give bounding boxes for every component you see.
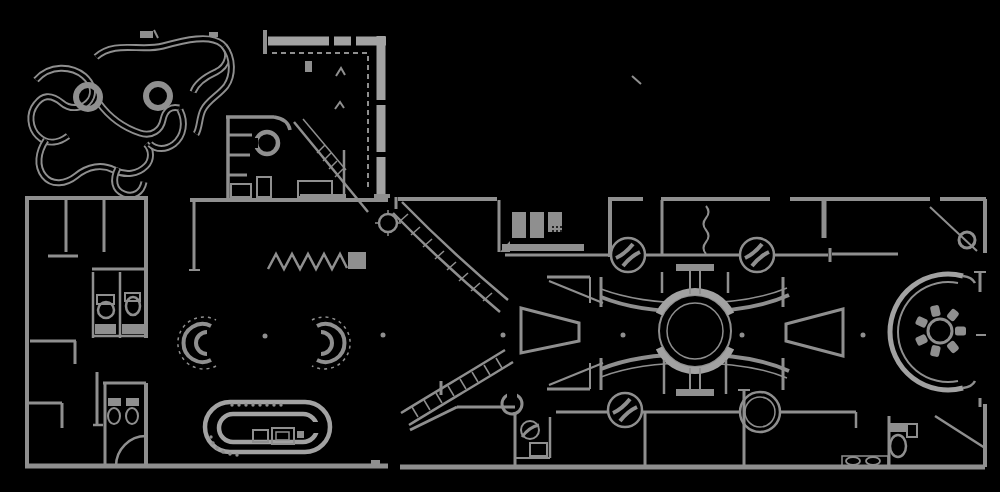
locker-2 — [530, 212, 544, 238]
revolving-door-2 — [740, 238, 774, 272]
floor-plan-page — [0, 0, 1000, 492]
locker-dot-3 — [560, 226, 562, 228]
colonnade-dot-3 — [740, 333, 745, 338]
furniture — [231, 184, 251, 197]
desk-dot-12 — [221, 450, 224, 453]
desk-gap — [311, 422, 322, 433]
rotunda-hall — [501, 264, 866, 396]
court-arc-hook-2 — [963, 381, 975, 388]
desk-dot-4 — [251, 403, 254, 406]
chair-5 — [915, 316, 929, 329]
south-rooms — [457, 390, 985, 466]
fixture-box — [907, 424, 917, 437]
column-ring-3 — [959, 232, 975, 248]
toilet-bowl-2 — [108, 408, 120, 424]
desk-dot-7 — [272, 403, 275, 406]
east-court — [890, 199, 986, 407]
ramp-tread-9 — [412, 407, 418, 417]
revolving-door — [611, 238, 645, 272]
desk-dot-8 — [279, 403, 282, 406]
ramp-south-rail-2 — [409, 362, 513, 425]
desk-dot-5 — [258, 403, 261, 406]
cistern-4 — [126, 398, 139, 406]
chair-2 — [946, 340, 960, 354]
symbol-mark-2 — [335, 102, 344, 109]
ramp-north-rail — [402, 202, 508, 300]
chair-3 — [930, 345, 941, 358]
stair-kiosk — [226, 116, 368, 212]
ramp-tread-14 — [472, 372, 478, 382]
column-dot — [263, 334, 268, 339]
toilet-bowl — [126, 297, 140, 315]
wall-break-4 — [372, 152, 388, 157]
desk-dot-6 — [265, 403, 268, 406]
revolving-door-3 — [608, 393, 642, 427]
shower-arc — [116, 436, 146, 466]
desk-dot-10 — [211, 441, 214, 444]
vestibule-diagonal — [549, 281, 603, 303]
locker — [512, 212, 526, 238]
slide-tube-lower — [39, 140, 151, 183]
vestibule-diagonal-2 — [549, 363, 603, 385]
court-arc-hook — [963, 276, 975, 283]
ramp-tread-10 — [424, 400, 430, 410]
zigzag-feature-wall — [268, 254, 347, 269]
zigzag-end-block — [348, 252, 366, 269]
floor-plan-drawing — [0, 0, 1000, 492]
desk-equipment-3 — [276, 432, 289, 440]
splash-pool-east — [146, 84, 170, 108]
stage-trapezoid-west — [521, 308, 579, 353]
locker-dot-2 — [556, 226, 558, 228]
grid-marker-tick — [154, 30, 158, 38]
round-table-gap — [252, 138, 258, 148]
ramp-south-rail — [401, 350, 505, 413]
bench-arrow — [500, 241, 510, 252]
desk-dot-11 — [215, 446, 218, 449]
stair-tread — [317, 145, 325, 153]
west-wing — [25, 196, 148, 468]
curtain-wavy-line — [704, 206, 709, 254]
toilet-bowl-4 — [890, 435, 906, 457]
ramp-tread-15 — [484, 365, 490, 375]
ramp-tread-13 — [460, 379, 466, 389]
grid-marker — [140, 31, 153, 38]
desk-dot-14 — [235, 453, 238, 456]
colonnade-dot-2 — [621, 333, 626, 338]
ramp-tread-16 — [496, 358, 502, 368]
desk-dot-13 — [228, 452, 231, 455]
round-table — [256, 132, 278, 154]
ramp-tread-12 — [448, 386, 454, 396]
stair-landing — [530, 443, 547, 456]
round-table-2-center — [933, 324, 947, 338]
threshold-marker — [371, 460, 380, 466]
locker-3 — [548, 212, 562, 232]
gallery-hall-wall — [265, 30, 390, 198]
chair-4 — [915, 334, 929, 347]
locker-dot-4 — [552, 230, 554, 232]
lobby — [178, 200, 401, 457]
bench-counter — [502, 244, 584, 251]
chair — [955, 327, 966, 336]
colonnade-dot-4 — [861, 333, 866, 338]
colonnade-dot — [501, 333, 506, 338]
desk-dot-2 — [237, 403, 240, 406]
chair-7 — [946, 308, 960, 322]
survey-tick — [632, 76, 641, 84]
desk-equipment-4 — [297, 431, 304, 438]
sink-basin-2 — [866, 457, 880, 465]
bench — [95, 324, 116, 334]
rotunda-cap-south — [676, 389, 714, 396]
corner-diagonal-wall — [935, 416, 985, 448]
water-slide-garden — [31, 30, 312, 195]
symbol-mark — [336, 68, 345, 76]
curved-seating-east — [321, 332, 332, 354]
double-swing-door-arc-4 — [745, 412, 775, 427]
grid-marker-2 — [209, 32, 218, 37]
ramp-tread — [399, 214, 408, 222]
ramps — [393, 197, 513, 430]
locker-dot-6 — [560, 230, 562, 232]
column-ring — [379, 214, 397, 232]
wall-break — [329, 34, 334, 48]
stage-trapezoid-east — [786, 309, 843, 356]
chair-6 — [930, 305, 941, 318]
double-swing-door-arc-2 — [745, 397, 775, 412]
ramp-north-rail-2 — [393, 213, 500, 312]
column-dot-2 — [381, 333, 386, 338]
cistern-3 — [108, 398, 121, 406]
column-ring-gap — [507, 392, 517, 400]
central-wing — [398, 76, 930, 272]
locker-dot-5 — [556, 230, 558, 232]
door-swing-diagonal — [930, 207, 977, 251]
wall-break-2 — [351, 34, 356, 48]
desk-dot-9 — [209, 435, 212, 438]
grid-marker-3 — [305, 61, 312, 72]
bench-2 — [122, 324, 146, 334]
desk-dot-3 — [244, 403, 247, 406]
desk-dot — [230, 403, 233, 406]
furniture-2 — [257, 177, 271, 197]
sink-basin — [846, 457, 860, 465]
cistern-5 — [890, 423, 906, 432]
locker-dot — [552, 226, 554, 228]
wall-break-3 — [372, 100, 388, 105]
curved-seating-west — [196, 332, 207, 354]
kiosk-wall-hook — [274, 117, 290, 130]
rotunda-cap-north — [676, 264, 714, 271]
toilet-bowl-3 — [126, 408, 138, 424]
